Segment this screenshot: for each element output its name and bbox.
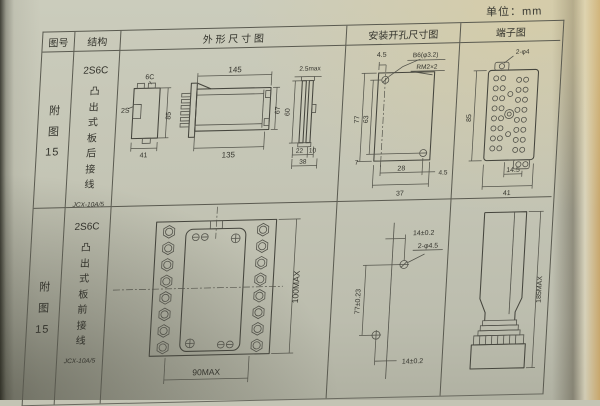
dim-6c: 6C <box>145 74 154 81</box>
socket-comb <box>473 335 523 345</box>
mounting-holes-svg: 4.5 B6(φ3.2) RM2×2 77 63 7 28 4.5 37 <box>338 43 461 202</box>
fig-label: 附图 <box>36 278 52 320</box>
dim-10: 10 <box>309 147 317 154</box>
dim-14-5: 14.5 <box>506 167 520 174</box>
panel-holes-svg: 14±0.2 2-φ4.5 77±0.23 14±0.2 <box>327 199 452 398</box>
terminal-block-svg: 85 2-φ4 14.5 41 <box>452 41 561 200</box>
header-mounting: 安装开孔尺寸图 <box>346 23 461 46</box>
row2-mounting-drawing: 14±0.2 2-φ4.5 77±0.23 14±0.2 <box>327 199 452 398</box>
dim-4-5-top: 4.5 <box>377 52 387 59</box>
dim-14-bottom: 14±0.2 <box>402 358 424 365</box>
hole-spec-label: 2-φ4.5 <box>417 243 438 250</box>
dimension-table: 图号 结构 外 形 尺 寸 图 安装开孔尺寸图 端子图 附图 15 2S6C 凸… <box>22 20 565 406</box>
fig-number: 15 <box>45 147 60 159</box>
dim-85-terminal: 85 <box>466 114 473 122</box>
dim-100max: 100MAX <box>290 270 302 303</box>
terminal-hole-label: 2-φ4 <box>516 49 530 56</box>
dim-90max: 90MAX <box>192 367 221 378</box>
dim-85: 85 <box>165 112 172 120</box>
dim-60: 60 <box>284 108 291 116</box>
relay-end-view: 6C 2S 85 41 <box>118 74 175 160</box>
dim-41: 41 <box>139 152 147 159</box>
hole-spec-label: B6(φ3.2) <box>413 52 439 60</box>
thread-spec-label: RM2×2 <box>416 64 438 71</box>
socket-front-view-svg: 90MAX 100MAX <box>101 202 338 403</box>
relay-outline-views-svg: 6C 2S 85 41 <box>112 46 347 207</box>
dim-2-5max: 2.5max <box>299 65 321 72</box>
row2-terminal-drawing: 185MAX <box>441 197 552 396</box>
dim-63: 63 <box>363 115 370 123</box>
dim-67: 67 <box>275 106 282 114</box>
terminal-nut-columns <box>157 223 269 354</box>
structure-desc: 凸出式板前接线 <box>74 241 92 350</box>
relay-flange-view: 2.5max 60 22 10 38 <box>281 65 322 169</box>
dim-4-5-right: 4.5 <box>438 169 448 176</box>
terminal-screw-grid <box>490 75 529 153</box>
dim-77-tol: 77±0.23 <box>354 289 362 315</box>
structure-desc: 凸出式板后接线 <box>83 84 101 193</box>
relay-side-view: 145 135 67 <box>178 64 284 160</box>
dim-77: 77 <box>354 115 361 123</box>
dim-145: 145 <box>228 65 242 74</box>
fig-number: 15 <box>35 323 50 335</box>
dim-185max: 185MAX <box>536 276 545 303</box>
dim-7: 7 <box>355 159 359 166</box>
row1-mounting-drawing: 4.5 B6(φ3.2) RM2×2 77 63 7 28 4.5 37 <box>338 43 461 202</box>
header-fig-no: 图号 <box>42 32 75 53</box>
dim-135: 135 <box>221 150 235 159</box>
dim-2s: 2S <box>121 108 130 115</box>
model-code: 2S6C <box>74 221 100 233</box>
header-terminal: 端子图 <box>460 21 561 43</box>
dim-14-top: 14±0.2 <box>413 230 435 237</box>
row1-terminal-drawing: 85 2-φ4 14.5 41 <box>452 41 561 200</box>
dim-38: 38 <box>299 159 307 166</box>
dim-41-terminal: 41 <box>503 190 511 197</box>
dim-37: 37 <box>396 190 404 197</box>
row1-outline-drawing: 6C 2S 85 41 <box>112 46 347 207</box>
dim-22: 22 <box>296 148 304 155</box>
row2-outline-drawing: 90MAX 100MAX <box>101 202 338 403</box>
unit-label: 单位：mm <box>486 2 543 19</box>
type-code: JCX-10A/5 <box>64 357 96 365</box>
dim-28: 28 <box>397 165 405 172</box>
header-structure: 结构 <box>74 31 121 52</box>
fig-label: 附图 <box>46 101 62 143</box>
model-code: 2S6C <box>83 65 109 77</box>
relay-on-socket-svg: 185MAX <box>441 197 552 396</box>
